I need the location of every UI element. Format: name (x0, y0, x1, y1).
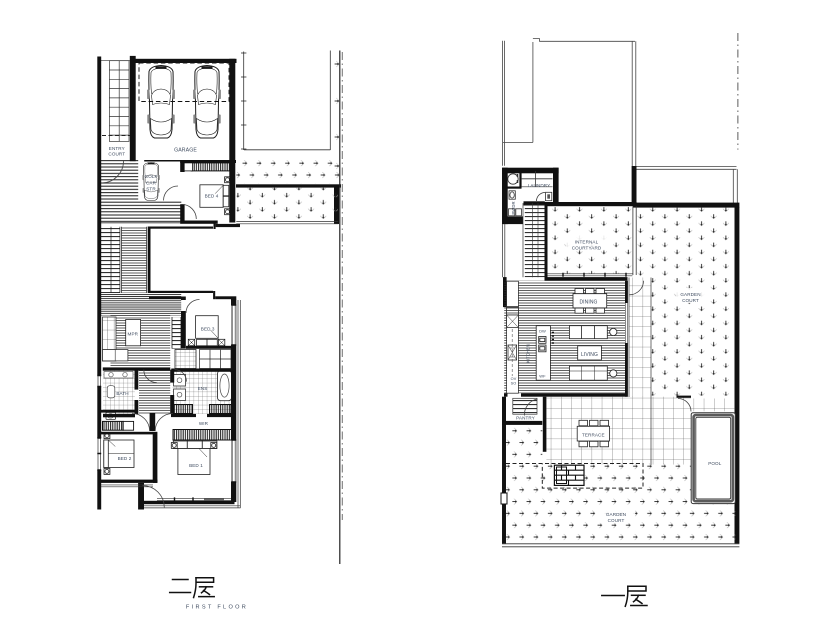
svg-text:WIR: WIR (199, 421, 209, 426)
svg-text:WF: WF (539, 374, 546, 379)
svg-text:PWDR: PWDR (511, 201, 516, 214)
svg-text:MPR: MPR (128, 332, 139, 337)
svg-text:GARDEN: GARDEN (606, 512, 626, 517)
svg-text:COURT: COURT (608, 518, 625, 523)
svg-text:GARAGE: GARAGE (174, 148, 197, 154)
svg-text:BED 1: BED 1 (189, 463, 203, 468)
svg-text:BATH: BATH (116, 391, 128, 396)
svg-text:ENTRY: ENTRY (109, 146, 125, 151)
svg-text:INTERNAL: INTERNAL (575, 240, 599, 245)
svg-text:DW: DW (539, 329, 546, 334)
svg-text:KITCHEN: KITCHEN (525, 344, 530, 363)
svg-text:POOL: POOL (708, 461, 722, 466)
svg-text:CAR: CAR (146, 181, 157, 186)
svg-text:PANTRY: PANTRY (516, 416, 535, 421)
svg-text:COURT: COURT (682, 298, 699, 303)
svg-text:GARDEN: GARDEN (680, 292, 700, 297)
svg-text:LAUNDRY: LAUNDRY (528, 183, 551, 188)
svg-text:COURT: COURT (108, 151, 125, 156)
svg-text:STR: STR (146, 187, 156, 192)
svg-text:LIVING: LIVING (581, 352, 598, 358)
svg-text:BED 3: BED 3 (201, 327, 215, 332)
svg-text:OV: OV (511, 377, 517, 381)
svg-text:TERRACE: TERRACE (582, 433, 605, 438)
svg-text:ENS: ENS (198, 386, 208, 391)
svg-text:GOLF: GOLF (145, 174, 158, 179)
svg-text:BED 2: BED 2 (118, 456, 132, 461)
svg-text:FIRST FLOOR: FIRST FLOOR (186, 605, 248, 611)
svg-text:DINING: DINING (579, 300, 597, 306)
svg-text:SO: SO (511, 382, 517, 386)
svg-text:BED 4: BED 4 (205, 194, 219, 199)
svg-text:COURTYARD: COURTYARD (572, 246, 602, 251)
